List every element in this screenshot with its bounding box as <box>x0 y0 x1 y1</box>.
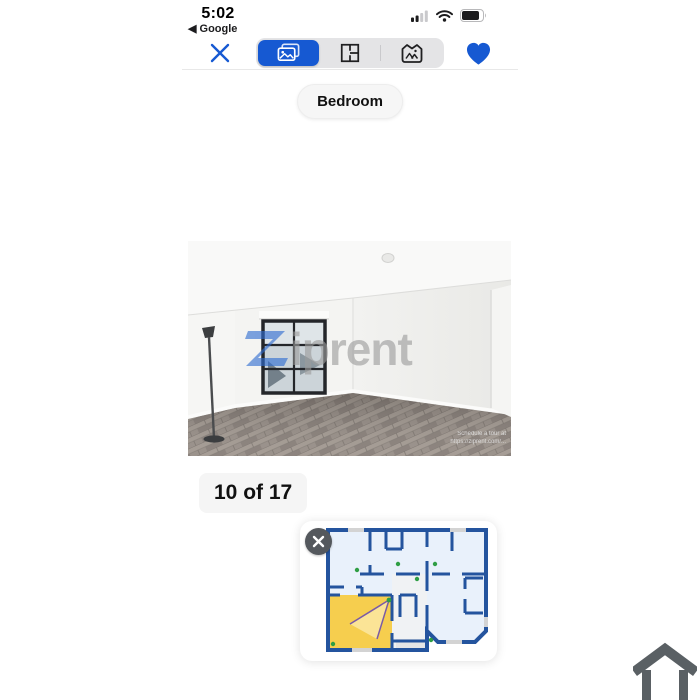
photo-caption-line2: https://ziprent.com/... <box>450 439 506 445</box>
x-icon <box>209 42 231 64</box>
toolbar-divider <box>182 69 518 70</box>
close-button[interactable] <box>206 40 234 66</box>
house-icon <box>633 642 697 700</box>
favorite-button[interactable] <box>463 39 493 67</box>
segment-map[interactable] <box>381 40 442 66</box>
watermark-text: iprent <box>290 323 412 375</box>
phone-screen: 5:02 ◀ Google <box>0 0 700 700</box>
segment-photos[interactable] <box>258 40 319 66</box>
photos-icon <box>276 42 301 64</box>
floorplan-thumbnail-card[interactable] <box>300 521 497 661</box>
cellular-signal-icon <box>411 10 429 22</box>
bedroom-photo-illustration: iprent Schedule a tour at https://zipren… <box>188 241 511 456</box>
room-label-pill: Bedroom <box>297 84 403 119</box>
floorplan-close-button[interactable] <box>305 528 332 555</box>
listing-photo[interactable]: iprent Schedule a tour at https://zipren… <box>188 241 511 456</box>
room-label: Bedroom <box>317 93 383 110</box>
wifi-icon <box>436 10 453 22</box>
photo-counter-text: 10 of 17 <box>214 481 292 504</box>
segment-floor-plan[interactable] <box>319 40 380 66</box>
back-to-app-button[interactable]: ◀ Google <box>188 22 237 35</box>
photo-caption-line1: Schedule a tour at <box>457 431 506 437</box>
heart-icon <box>465 41 492 66</box>
status-icons <box>411 9 487 22</box>
battery-icon <box>460 9 487 22</box>
floorplan-icon <box>339 42 361 64</box>
photo-counter: 10 of 17 <box>199 473 307 513</box>
status-time: 5:02 <box>193 5 243 23</box>
map-icon <box>400 42 424 64</box>
x-icon <box>312 535 325 548</box>
view-mode-segmented-control <box>256 38 444 68</box>
